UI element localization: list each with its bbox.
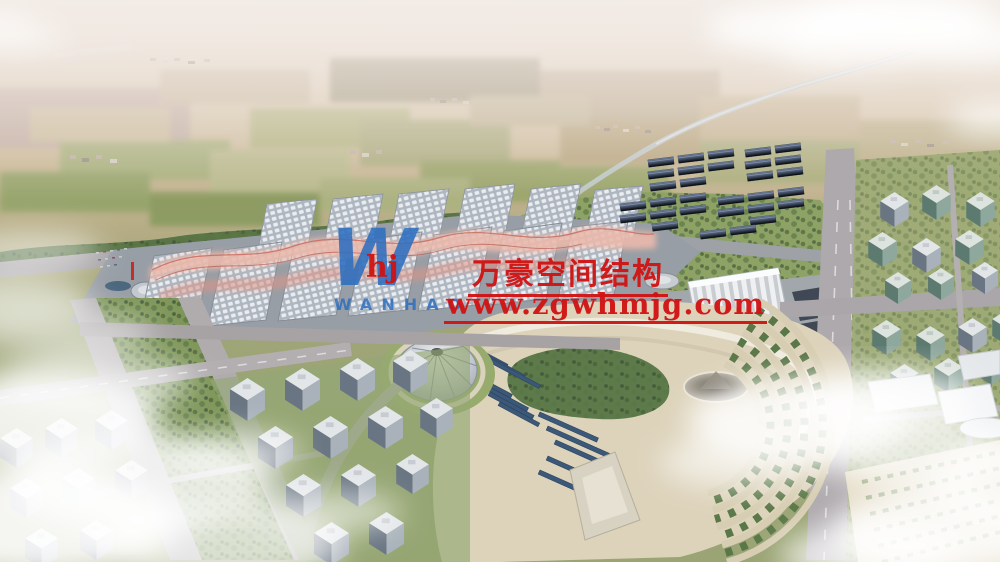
red-crane — [131, 262, 134, 280]
aerial-rendering: W hj WANHAO 万豪空间结构 www.zgwhmjg.com — [0, 0, 1000, 562]
pond — [105, 281, 131, 291]
wanhao-logo-monogram: hj — [366, 250, 399, 285]
watermark-website: www.zgwhmjg.com — [444, 287, 767, 324]
